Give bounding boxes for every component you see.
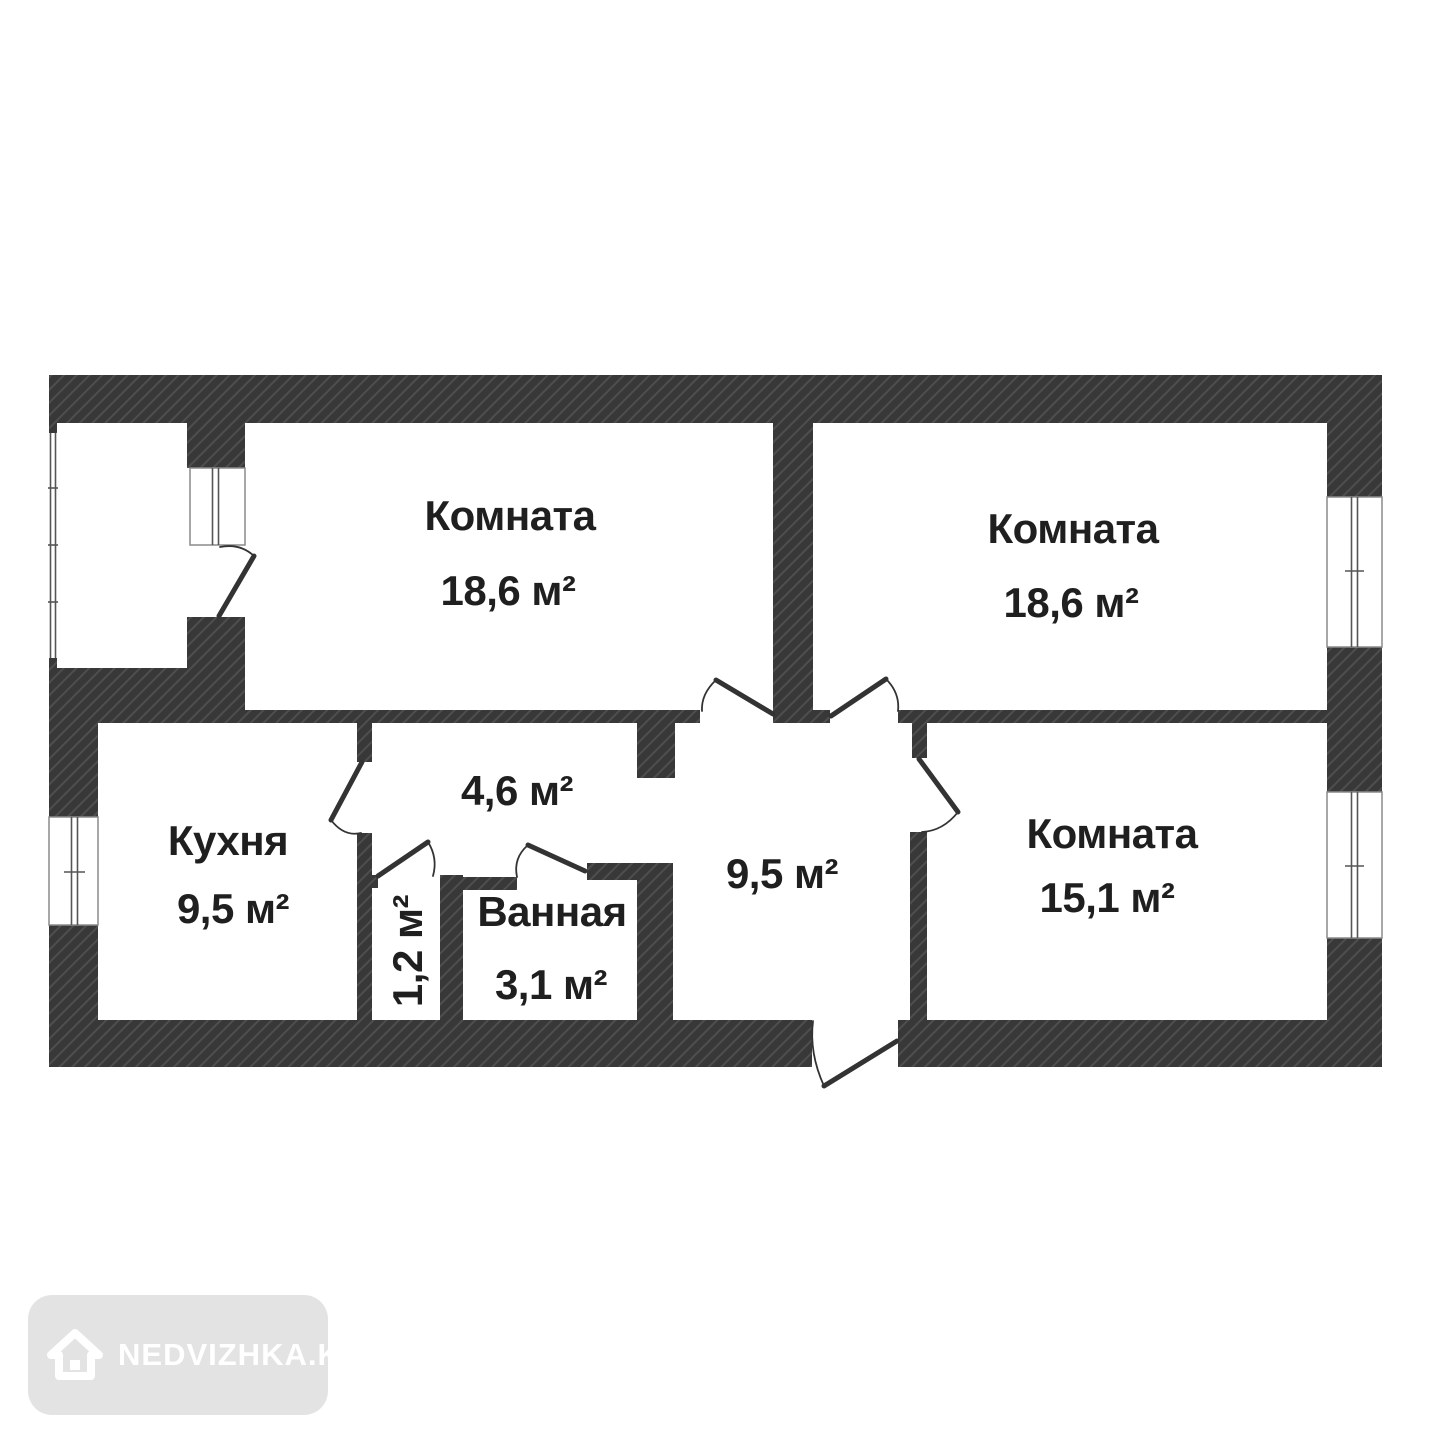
bathroom-name: Ванная — [477, 888, 626, 936]
wall-segment — [898, 1020, 1382, 1067]
window-room-right — [1327, 792, 1382, 938]
wall-segment — [773, 423, 813, 723]
wall-segment — [637, 710, 675, 778]
wall-segment — [637, 863, 673, 1020]
wc-area: 1,2 м² — [384, 895, 432, 1007]
wall-segment — [898, 710, 1327, 723]
room-right-area: 15,1 м² — [1040, 874, 1175, 922]
room-top-left-area: 18,6 м² — [441, 567, 576, 615]
wall-segment — [1327, 647, 1382, 792]
entrance-hall-area: 9,5 м² — [726, 850, 838, 898]
wall-segment — [912, 723, 927, 758]
wall-segment — [357, 723, 372, 762]
room-top-right-area: 18,6 м² — [1004, 579, 1139, 627]
bathroom-area: 3,1 м² — [495, 961, 607, 1009]
wall-segment — [187, 617, 245, 668]
wall-segment — [910, 832, 927, 1020]
window-kitchen — [49, 817, 98, 925]
wall-segment — [357, 833, 372, 1020]
door-room-right — [919, 759, 958, 832]
wall-segment — [245, 710, 700, 723]
floor-plan-svg — [0, 0, 1440, 1440]
wall-segment — [187, 423, 245, 468]
wall-segment — [357, 875, 378, 888]
kitchen-area: 9,5 м² — [177, 885, 289, 933]
watermark-badge: NEDVIZHKA.KZ — [28, 1295, 328, 1415]
hallway-area: 4,6 м² — [461, 767, 573, 815]
wall-segment — [49, 375, 1382, 423]
wall-segment — [440, 875, 463, 1020]
door-bathroom — [516, 845, 585, 877]
door-room-top-left — [702, 680, 773, 714]
window-balcony-door-side — [190, 468, 245, 545]
door-entrance — [812, 1021, 897, 1086]
wall-segment — [813, 710, 830, 723]
door-kitchen — [331, 762, 362, 834]
house-icon — [44, 1324, 106, 1386]
room-top-left-name: Комната — [425, 492, 596, 540]
door-balcony — [219, 546, 254, 616]
wall-segment — [49, 668, 245, 723]
window-room-top-right — [1327, 497, 1382, 647]
wall-segment — [49, 925, 98, 1067]
watermark-label: NEDVIZHKA.KZ — [118, 1337, 361, 1373]
window-balcony-front — [48, 423, 58, 668]
wall-segment — [1327, 423, 1382, 497]
door-room-top-right — [831, 679, 898, 716]
room-right-name: Комната — [1027, 810, 1198, 858]
door-wc — [378, 842, 435, 876]
room-top-right-name: Комната — [988, 505, 1159, 553]
wall-segment — [49, 1020, 812, 1067]
walls — [49, 375, 1382, 1067]
kitchen-name: Кухня — [168, 817, 288, 865]
